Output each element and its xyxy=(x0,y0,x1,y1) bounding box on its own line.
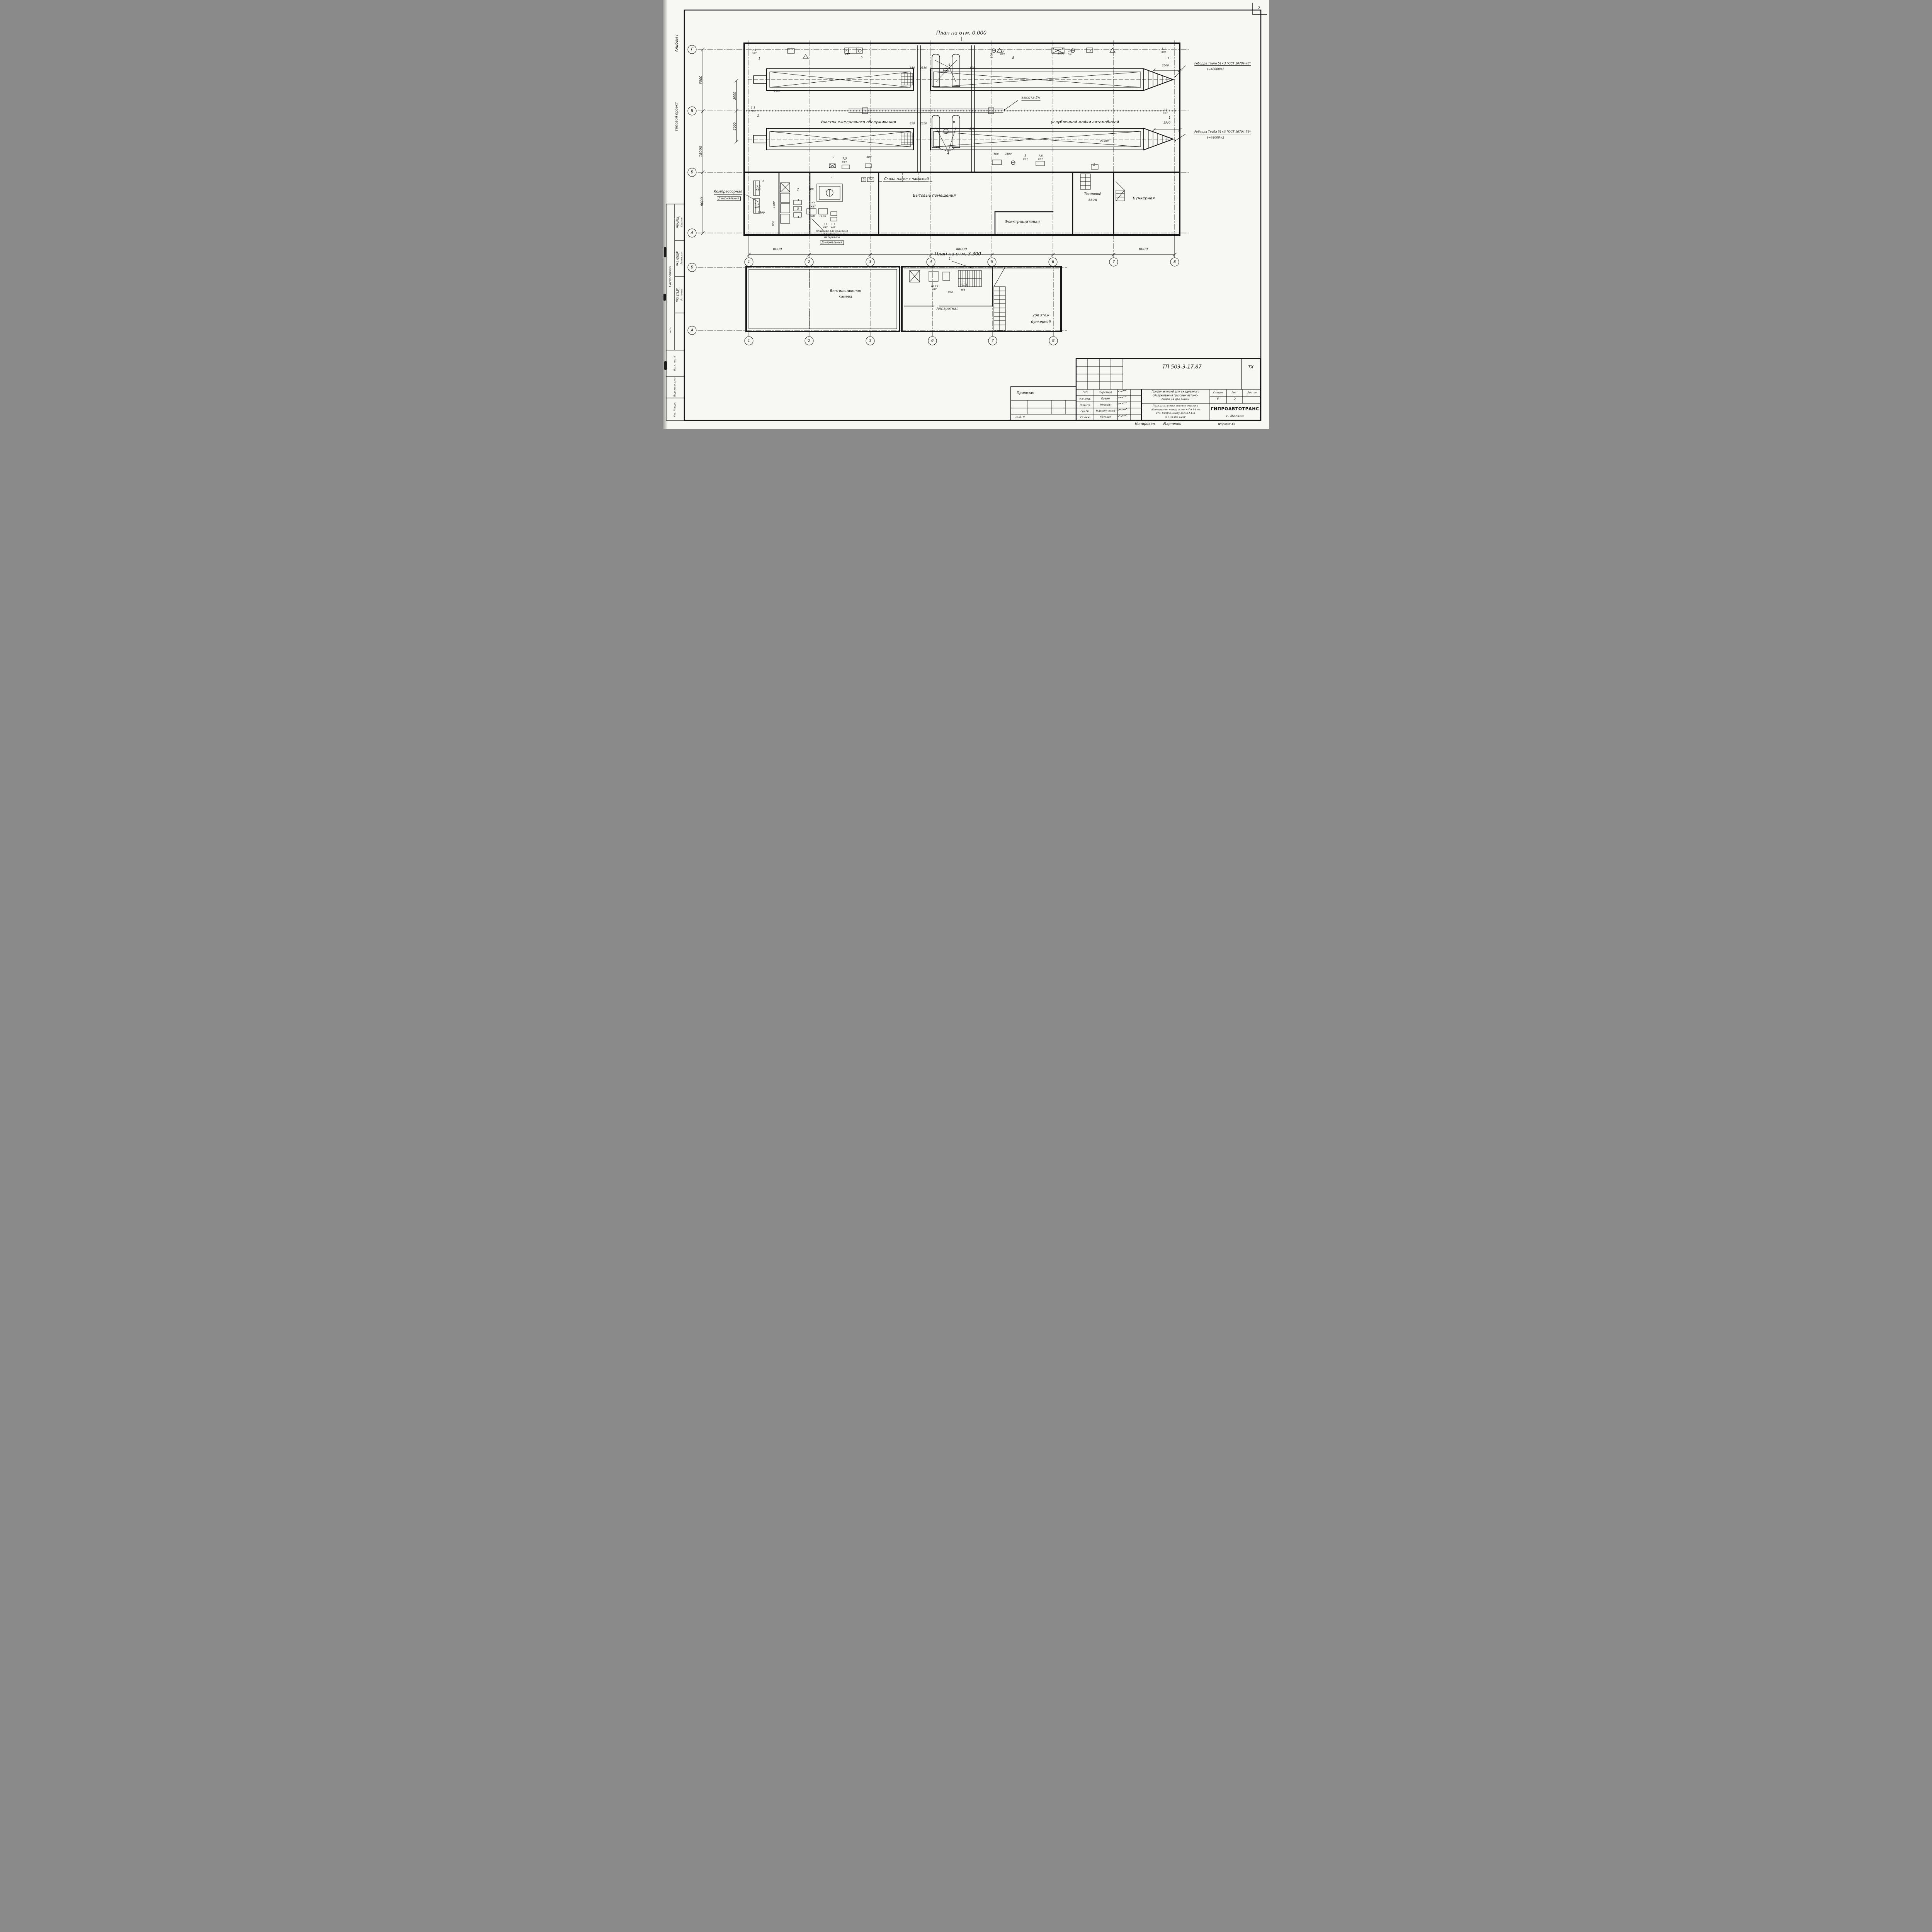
axis2-bubble-col-7: 7 xyxy=(988,337,997,345)
dim-label: 2500 xyxy=(1163,122,1170,124)
category-box-d2: Д нормальный xyxy=(820,241,844,245)
dim-label: 600 xyxy=(993,153,998,156)
dim-label: 10 xyxy=(1001,50,1005,53)
copied-label: Копировал xyxy=(1135,423,1155,426)
dim-label: 4 xyxy=(948,64,951,67)
dim-label: квт xyxy=(1023,158,1028,161)
axis-bubble-col-2: 2 xyxy=(805,258,814,267)
dim-label: 1 xyxy=(757,114,759,117)
tb-project-title: Профилакторий для ежедневного xyxy=(1151,391,1199,393)
category-box-p1: П-I xyxy=(867,178,874,182)
reborda-length-2: ℓ=48000×2 xyxy=(1207,136,1224,139)
axis2-bubble-col-3: 3 xyxy=(866,337,875,345)
dim-label: 700 xyxy=(808,188,813,191)
axis2-bubble-col-6: 6 xyxy=(928,337,937,345)
axis2-bubble-row-Б: Б xyxy=(688,263,697,272)
axis-bubble-col-8: 8 xyxy=(1170,258,1179,267)
dim-label: 3000 xyxy=(733,92,736,100)
dim-label: 1,1 xyxy=(1163,109,1167,112)
dim-label: 1,1 xyxy=(1162,48,1166,51)
stage-value: Р xyxy=(1217,398,1219,401)
tb-role-name: Кирсанов xyxy=(1099,391,1112,394)
dim-label: квт xyxy=(755,206,759,209)
dim-label: 40,75 xyxy=(960,284,968,286)
axis-bubble-col-1: 1 xyxy=(745,258,753,267)
reborda-note-2: Реборда Труба 51×3 ГОСТ 10704-76* xyxy=(1194,130,1251,134)
dim-bottom-48000: 48000 xyxy=(956,248,967,252)
dim-label: 2 xyxy=(1093,163,1095,167)
room-kompressornaya: Компрессорная xyxy=(714,190,742,195)
axis-bubble-col-4: 4 xyxy=(927,258,935,267)
tb-sheet-title: 6-7 на отм 3.300 xyxy=(1165,416,1185,418)
album-label: Альбом I xyxy=(675,34,679,52)
tb-sheet-title: План расстановки технологического xyxy=(1153,405,1198,407)
dim-label: 7,5 xyxy=(811,202,815,205)
dim-label: 500 xyxy=(810,215,815,218)
dim-label: 800 xyxy=(991,53,993,58)
dim-label: 1,1 xyxy=(1068,50,1072,53)
dim-label: 850 xyxy=(910,122,915,125)
blueprint-sheet: 7 План на отм. 0.000 План на отм. 3.300 … xyxy=(663,0,1269,429)
doc-type: ТХ xyxy=(1248,365,1253,369)
dim-label: 2350 xyxy=(920,67,927,70)
dim-label: квт xyxy=(1163,112,1168,115)
height-note: высота 2м xyxy=(1022,97,1041,101)
hall-label-right: углубленной мойки автомобилей xyxy=(1051,121,1119,124)
plan1-title: План на отм. 0.000 xyxy=(936,31,986,36)
listov-header: Листов xyxy=(1247,391,1257,394)
dim-label: квт xyxy=(811,206,816,208)
inventory-label: Инв. N xyxy=(1015,416,1025,419)
dim-label: 2 xyxy=(1024,154,1026,157)
dim-label: 5,5 xyxy=(755,203,759,206)
room-bunker-2floor-2: бункерной xyxy=(1031,321,1051,324)
stage-header: Стадия xyxy=(1213,391,1223,394)
dim-label: 1,1 xyxy=(751,107,755,109)
reborda-note-1: Реборда Труба 51×3 ГОСТ 10704-76* xyxy=(1194,62,1251,66)
org-name: ГИПРОАВТОТРАНС xyxy=(1211,407,1259,411)
plan2-title: План на отм. 3.300 xyxy=(935,252,981,256)
dim-label: 1 xyxy=(831,176,833,179)
dim-label: 600 xyxy=(969,128,974,131)
dim-label: 465 xyxy=(961,289,965,291)
project-type-label: Типовой проект xyxy=(675,102,679,131)
tb-sheet-title: оборудования между осями А-Г и 1-8 на xyxy=(1151,409,1200,411)
dim-label: квт xyxy=(1000,53,1005,56)
agreed-label: Согласовано xyxy=(669,266,672,287)
dim-label: 1 xyxy=(762,180,764,183)
dim-label: 1 xyxy=(949,258,951,261)
tb-sheet-title: отм. 0.000 и между осями А-Б и xyxy=(1156,412,1195,415)
dim-label: квт xyxy=(823,226,828,229)
dim-label: 900 xyxy=(948,291,953,294)
axis-bubble-col-3: 3 xyxy=(866,258,875,267)
dim-label: 9 xyxy=(832,156,834,159)
dim-label: 300 xyxy=(866,156,871,159)
room-ventkamera-2: камера xyxy=(839,296,852,299)
dim-label: 24500 xyxy=(1100,140,1109,143)
side-stamp-name: Ратников xyxy=(681,289,683,300)
side-corner-label: Подпись и дата xyxy=(674,378,676,397)
dim-bottom-6000-right: 6000 xyxy=(1139,248,1148,252)
tb-role: Рук.гр. xyxy=(1080,410,1089,413)
dim-label: квт xyxy=(845,53,850,56)
dim-label: 3 xyxy=(797,216,799,219)
axis-bubble-row-В: В xyxy=(688,107,697,116)
dim-label: квт xyxy=(831,226,835,229)
dim-label: квт xyxy=(751,110,755,112)
room-teplovoy-vvod-2: ввод xyxy=(1088,199,1097,202)
dim-label: 2 xyxy=(1089,49,1091,52)
tb-role: Нач.отд. xyxy=(1079,398,1090,400)
axis-bubble-row-А: А xyxy=(688,229,697,238)
dim-label: 800 xyxy=(772,221,775,226)
category-box-d1: Д нормальный xyxy=(717,197,741,201)
dim-label: квт xyxy=(932,288,937,291)
org-city: г. Москва xyxy=(1226,415,1244,418)
axis2-bubble-col-8: 8 xyxy=(1049,337,1058,345)
axis-bubble-row-Г: Г xyxy=(688,45,697,54)
axis-bubble-col-5: 5 xyxy=(988,258,997,267)
dim-label: 7,5 xyxy=(845,50,849,53)
tb-role-name: Пузин xyxy=(1101,398,1110,400)
dim-label: 3 xyxy=(797,207,799,211)
dim-label: 890 xyxy=(970,67,975,70)
tb-role-name: Вотяков xyxy=(1100,416,1111,419)
side-stamp-role: Нач. ЭТО xyxy=(676,217,679,228)
side-stamp-name: Ломыслов xyxy=(681,252,683,265)
side-stamp-role: Нач. отд ВК xyxy=(676,287,679,302)
room-ventkamera-1: Вентиляционная xyxy=(830,290,861,293)
tb-role-name: Масленников xyxy=(1096,410,1115,413)
dim-bottom-6000-left: 6000 xyxy=(773,248,782,252)
dim-label: квт xyxy=(752,52,757,55)
format-label: Формат А1 xyxy=(1218,423,1236,426)
room-kladovaya-2: эксплуатационных xyxy=(819,233,844,236)
room-kladovaya-1: Кладовая для хранения xyxy=(816,230,848,233)
dim-label: 3 xyxy=(797,199,799,202)
dim-label: 4 xyxy=(947,152,949,156)
dim-label: 1400 xyxy=(774,90,781,93)
category-box-v: В xyxy=(861,178,866,182)
dim-label: 3000 xyxy=(733,122,736,130)
dim-label: 2500 xyxy=(1005,153,1012,156)
tb-role-name: Козырь xyxy=(1100,404,1111,406)
dim-label: 1 xyxy=(758,57,760,60)
room-bunkernaya: Бункерная xyxy=(1133,197,1155,201)
room-bytovye: Бытовые помещения xyxy=(913,194,956,198)
axis2-bubble-row-А: А xyxy=(688,326,697,335)
page-number: 7 xyxy=(1258,7,1260,10)
dim-label: 1500 xyxy=(758,212,765,214)
room-kladovaya-3: материалов xyxy=(824,236,840,239)
dim-left-6000-bottom: 6000 xyxy=(701,197,704,206)
attached-label: Привязан xyxy=(1017,392,1034,395)
side-stamp-name: Крылов xyxy=(681,218,683,227)
room-teplovoy-vvod-1: Тепловой xyxy=(1084,193,1102,196)
tb-role: ГИП xyxy=(1082,391,1087,394)
dim-label: 1 xyxy=(1168,116,1170,119)
tb-project-title: билей на две линии xyxy=(1162,398,1189,401)
room-apparatnaya: Аппаратная xyxy=(937,308,959,311)
list-header: Лист xyxy=(1231,391,1238,394)
doc-number: ТП 503-3-17.87 xyxy=(1162,365,1202,370)
copied-name: Марченко xyxy=(1163,423,1182,426)
dim-label: 2000 xyxy=(1058,53,1065,55)
dim-label: 7,5 xyxy=(842,158,847,160)
room-bunker-2floor-1: 2ой этаж xyxy=(1032,314,1049,318)
dim-label: квт xyxy=(756,189,761,191)
room-elektroshchitovaya: Электрощитовая xyxy=(1005,220,1040,224)
dim-label: 1100 xyxy=(819,215,826,218)
dim-label: 7,5 xyxy=(1038,155,1043,158)
side-corner-label: Инв. N подл. xyxy=(674,402,676,417)
dim-label: 5,5 xyxy=(756,185,760,188)
side-corner-label: Взам. инв. N xyxy=(674,356,676,371)
dim-label: квт xyxy=(1038,158,1043,161)
axis-bubble-row-Б: Б xyxy=(688,168,697,177)
hall-label-left: Участок ежедневного обслуживания xyxy=(820,121,896,124)
dim-left-18000: 18000 xyxy=(700,146,703,157)
sheet-number-value: 2 xyxy=(1233,398,1236,401)
axis2-bubble-col-1: 1 xyxy=(745,337,753,345)
dim-label: 4600 xyxy=(773,201,776,208)
room-sklad-masel: Склад масел с насосной xyxy=(884,178,929,182)
side-stamp-role: Нач. отд ОВ xyxy=(676,251,679,266)
dim-label: 1 xyxy=(1167,57,1169,60)
dim-label: 5 xyxy=(861,56,862,59)
dim-label: 5 xyxy=(1012,56,1014,60)
axis2-bubble-col-2: 2 xyxy=(805,337,814,345)
dim-label: квт xyxy=(1162,51,1166,54)
tb-project-title: обслуживания грузовых автомо- xyxy=(1153,395,1198,397)
dim-label: квт xyxy=(1068,53,1073,56)
axis-bubble-col-6: 6 xyxy=(1049,258,1058,267)
dim-label: 2 xyxy=(797,188,799,191)
reborda-length-1: ℓ=48000×2 xyxy=(1207,68,1224,71)
tb-role: Н.контр xyxy=(1080,404,1090,406)
hall-label-conj: и xyxy=(953,121,956,124)
dim-label: квт xyxy=(842,161,847,163)
dim-left-6000-top: 6000 xyxy=(700,76,703,85)
dim-label: 850 xyxy=(910,67,915,70)
dim-label: 2350 xyxy=(920,122,927,125)
axis-bubble-col-7: 7 xyxy=(1109,258,1118,267)
dim-label: 1,1 xyxy=(752,49,756,52)
tb-role: Ст.инж xyxy=(1080,416,1090,419)
dim-label: 2500 xyxy=(1162,65,1169,67)
